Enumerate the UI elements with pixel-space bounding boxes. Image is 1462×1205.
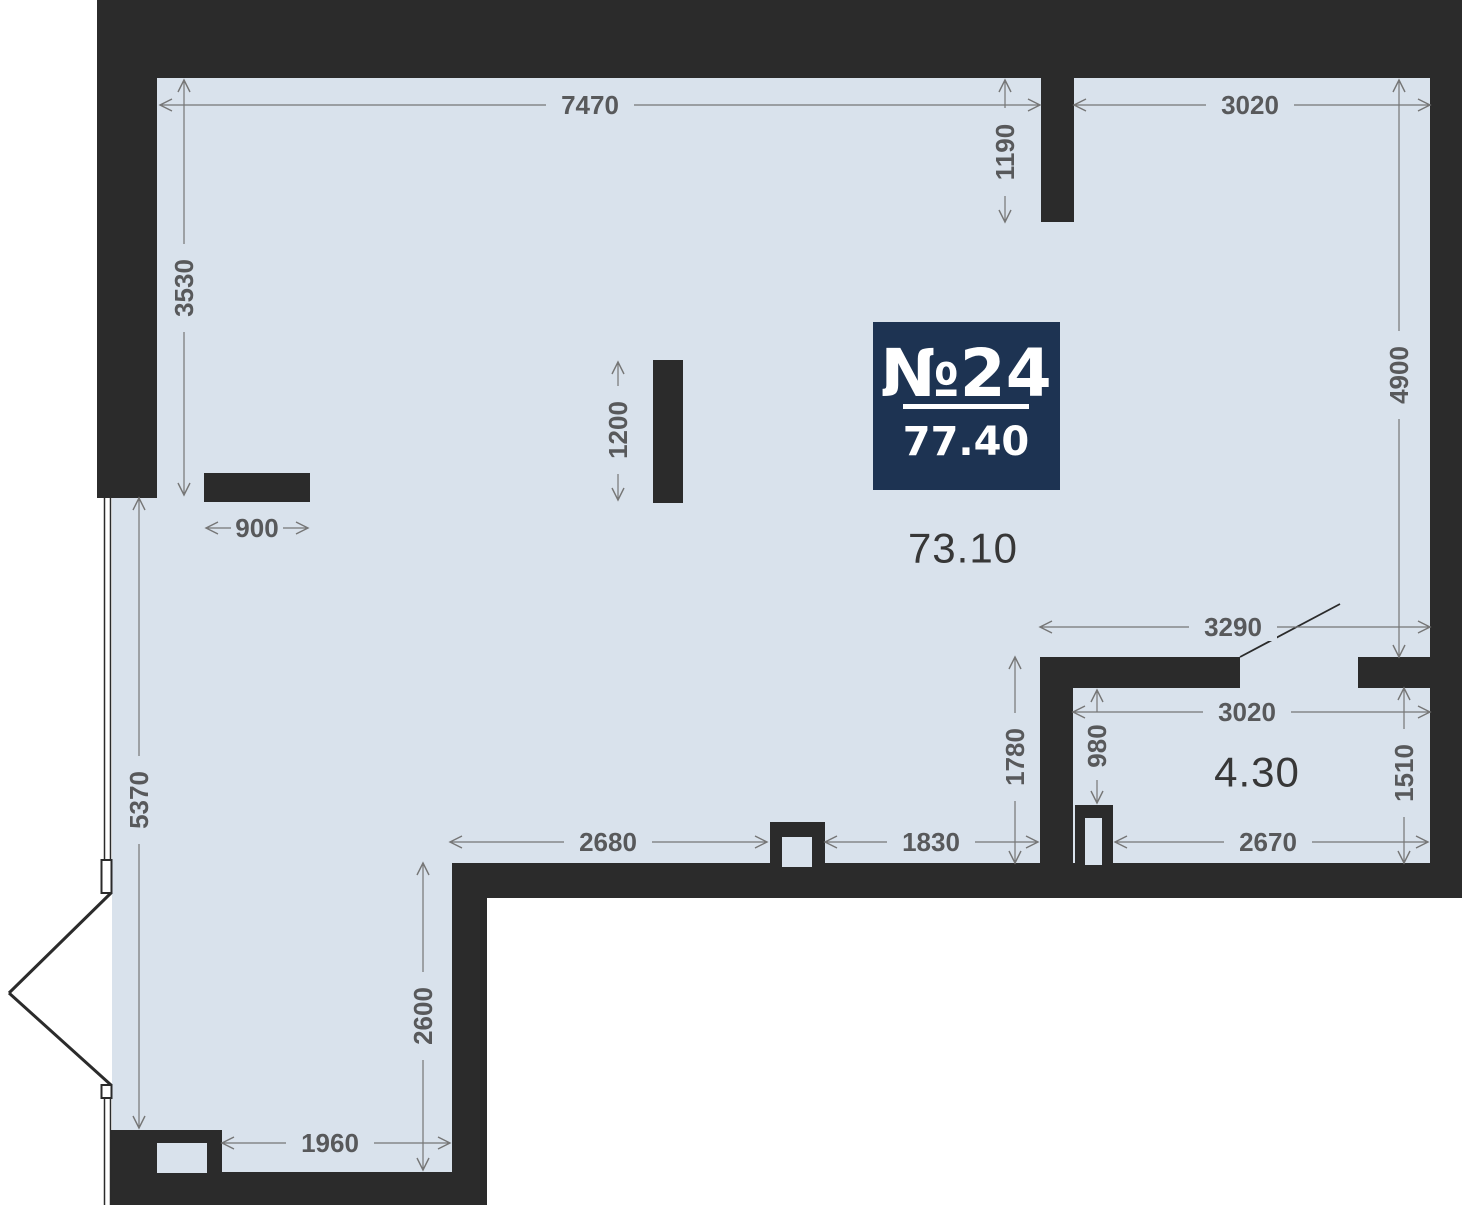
wall-hall-vertical bbox=[1040, 657, 1073, 864]
dim-label: 5370 bbox=[124, 771, 154, 829]
dim-label: 7470 bbox=[561, 90, 619, 120]
wall-left-upper bbox=[97, 0, 157, 498]
dim-label: 1510 bbox=[1389, 744, 1419, 802]
wall-bottom-right-band bbox=[452, 863, 1462, 898]
dim-label: 2600 bbox=[408, 987, 438, 1045]
dim-label: 3530 bbox=[169, 259, 199, 317]
unit-badge: №24 77.40 bbox=[873, 322, 1060, 490]
block-notch bbox=[157, 1143, 207, 1173]
dim-label: 3290 bbox=[1204, 612, 1262, 642]
wall-top bbox=[97, 0, 1462, 78]
shaft-bottom-inner bbox=[782, 837, 812, 867]
wall-right bbox=[1430, 78, 1462, 898]
wall-lower-vertical bbox=[452, 898, 487, 1205]
balcony-door-leaf-upper bbox=[9, 893, 111, 993]
dim-label: 2670 bbox=[1239, 827, 1297, 857]
balcony-door-leaf-lower bbox=[9, 993, 111, 1085]
floor-plan: 7470 3020 1190 3530 4900 bbox=[0, 0, 1462, 1205]
dim-label: 1960 bbox=[301, 1128, 359, 1158]
column bbox=[653, 360, 683, 503]
unit-number: №24 bbox=[880, 335, 1051, 412]
dim-label: 2680 bbox=[579, 827, 637, 857]
dim-label: 1830 bbox=[902, 827, 960, 857]
bathroom-area-label: 4.30 bbox=[1214, 749, 1300, 796]
unit-total-area: 77.40 bbox=[903, 419, 1030, 465]
wall-ledge bbox=[204, 473, 310, 502]
window-cap-upper bbox=[102, 860, 112, 893]
main-room-area-label: 73.10 bbox=[908, 525, 1018, 572]
dim-label: 900 bbox=[235, 513, 278, 543]
dim-label: 1200 bbox=[603, 401, 633, 459]
unit-badge-divider bbox=[903, 404, 1029, 409]
wall-top-stub bbox=[1041, 78, 1074, 222]
wall-bathroom-top-right bbox=[1358, 657, 1430, 688]
floor-plan-page: 7470 3020 1190 3530 4900 bbox=[0, 0, 1462, 1205]
floor-main bbox=[112, 78, 1430, 865]
shaft-bathroom-inner bbox=[1085, 818, 1102, 865]
dim-label: 3020 bbox=[1221, 90, 1279, 120]
wall-bottom-band bbox=[222, 1172, 457, 1205]
dim-label: 1190 bbox=[990, 124, 1020, 180]
window-cap-lower bbox=[102, 1085, 112, 1098]
dim-label: 980 bbox=[1082, 724, 1112, 767]
dim-label: 3020 bbox=[1218, 697, 1276, 727]
dim-label: 4900 bbox=[1384, 346, 1414, 404]
floor-lower-left bbox=[112, 863, 452, 1172]
dim-label: 1780 bbox=[1000, 728, 1030, 786]
